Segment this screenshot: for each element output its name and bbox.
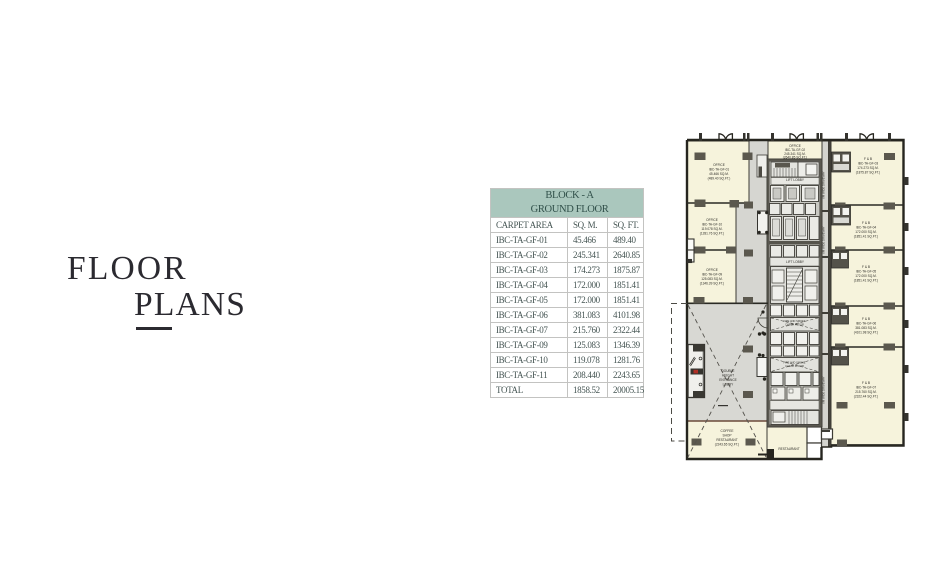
svg-text:119.078 SQ.M.: 119.078 SQ.M. bbox=[701, 227, 722, 231]
svg-text:(1851.41 SQ.FT.): (1851.41 SQ.FT.) bbox=[854, 235, 878, 239]
svg-text:6M WIDE DRIVEWAY: 6M WIDE DRIVEWAY bbox=[822, 376, 826, 403]
svg-text:45.466 SQ.M.: 45.466 SQ.M. bbox=[709, 172, 729, 176]
svg-text:IBC-TA-GF-06: IBC-TA-GF-06 bbox=[856, 322, 877, 326]
svg-text:(2243.65 SQ.FT.): (2243.65 SQ.FT.) bbox=[715, 443, 739, 447]
svg-text:HEIGHT: HEIGHT bbox=[722, 374, 734, 378]
svg-text:IBC-TA-GF-10: IBC-TA-GF-10 bbox=[702, 223, 723, 227]
svg-text:172.000 SQ.M.: 172.000 SQ.M. bbox=[855, 230, 877, 234]
svg-text:RESTAURANT: RESTAURANT bbox=[778, 447, 799, 451]
svg-text:DOUBLE: DOUBLE bbox=[721, 369, 734, 373]
svg-text:F & B: F & B bbox=[862, 317, 870, 321]
svg-text:174.273 SQ.M.: 174.273 SQ.M. bbox=[857, 166, 879, 170]
svg-text:COFFEE: COFFEE bbox=[721, 429, 734, 433]
svg-text:IBC-TA-GF-04: IBC-TA-GF-04 bbox=[856, 226, 877, 230]
svg-text:OFFICE: OFFICE bbox=[706, 268, 718, 272]
svg-text:(1281.76 SQ.FT.): (1281.76 SQ.FT.) bbox=[700, 232, 724, 236]
svg-text:(489.40 SQ.FT.): (489.40 SQ.FT.) bbox=[708, 177, 731, 181]
svg-text:(2640.85 SQ.FT.): (2640.85 SQ.FT.) bbox=[783, 156, 807, 160]
svg-text:FIRE AND SMOKE: FIRE AND SMOKE bbox=[783, 361, 805, 365]
svg-text:ENTRANCE: ENTRANCE bbox=[719, 378, 737, 382]
svg-text:125.083 SQ.M.: 125.083 SQ.M. bbox=[701, 277, 723, 281]
svg-text:OFFICE: OFFICE bbox=[706, 218, 718, 222]
svg-text:F & B: F & B bbox=[864, 157, 872, 161]
svg-text:LIFT LOBBY: LIFT LOBBY bbox=[786, 260, 805, 264]
svg-text:172.000 SQ.M.: 172.000 SQ.M. bbox=[855, 274, 877, 278]
svg-text:SHOP: SHOP bbox=[722, 434, 731, 438]
svg-text:(1875.87 SQ.FT.): (1875.87 SQ.FT.) bbox=[856, 171, 880, 175]
svg-text:FIRE AND SMOKE: FIRE AND SMOKE bbox=[783, 319, 805, 323]
svg-text:IBC-TA-GF-07: IBC-TA-GF-07 bbox=[856, 386, 877, 390]
svg-text:IBC-TA-GF-01: IBC-TA-GF-01 bbox=[709, 168, 730, 172]
svg-text:LOBBY: LOBBY bbox=[723, 383, 735, 387]
svg-text:OFFICE: OFFICE bbox=[713, 163, 725, 167]
svg-text:RESTAURANT: RESTAURANT bbox=[716, 438, 737, 442]
svg-text:215.760 SQ.M.: 215.760 SQ.M. bbox=[855, 390, 877, 394]
svg-text:IBC-TA-GF-03: IBC-TA-GF-03 bbox=[858, 162, 879, 166]
svg-text:F & B: F & B bbox=[862, 381, 870, 385]
svg-text:F & B: F & B bbox=[862, 221, 870, 225]
svg-text:(4101.98 SQ.FT.): (4101.98 SQ.FT.) bbox=[854, 331, 878, 335]
svg-text:(1346.39 SQ.FT.): (1346.39 SQ.FT.) bbox=[700, 282, 724, 286]
svg-text:6M WIDE DRIVEWAY: 6M WIDE DRIVEWAY bbox=[822, 226, 826, 253]
svg-text:F & B: F & B bbox=[862, 265, 870, 269]
svg-text:CHECK FLOOR: CHECK FLOOR bbox=[785, 323, 804, 327]
svg-text:IBC-TA-GF-05: IBC-TA-GF-05 bbox=[856, 270, 877, 274]
svg-text:381.083 SQ.M.: 381.083 SQ.M. bbox=[855, 326, 877, 330]
svg-text:(1851.41 SQ.FT.): (1851.41 SQ.FT.) bbox=[854, 279, 878, 283]
svg-text:(2322.44 SQ.FT.): (2322.44 SQ.FT.) bbox=[854, 395, 878, 399]
svg-text:CHECK FLOOR: CHECK FLOOR bbox=[785, 364, 804, 368]
svg-text:6M WIDE DRIVEWAY: 6M WIDE DRIVEWAY bbox=[822, 171, 826, 198]
svg-text:LIFT LOBBY: LIFT LOBBY bbox=[786, 178, 805, 182]
svg-text:IBC-TA-GF-09: IBC-TA-GF-09 bbox=[702, 273, 723, 277]
